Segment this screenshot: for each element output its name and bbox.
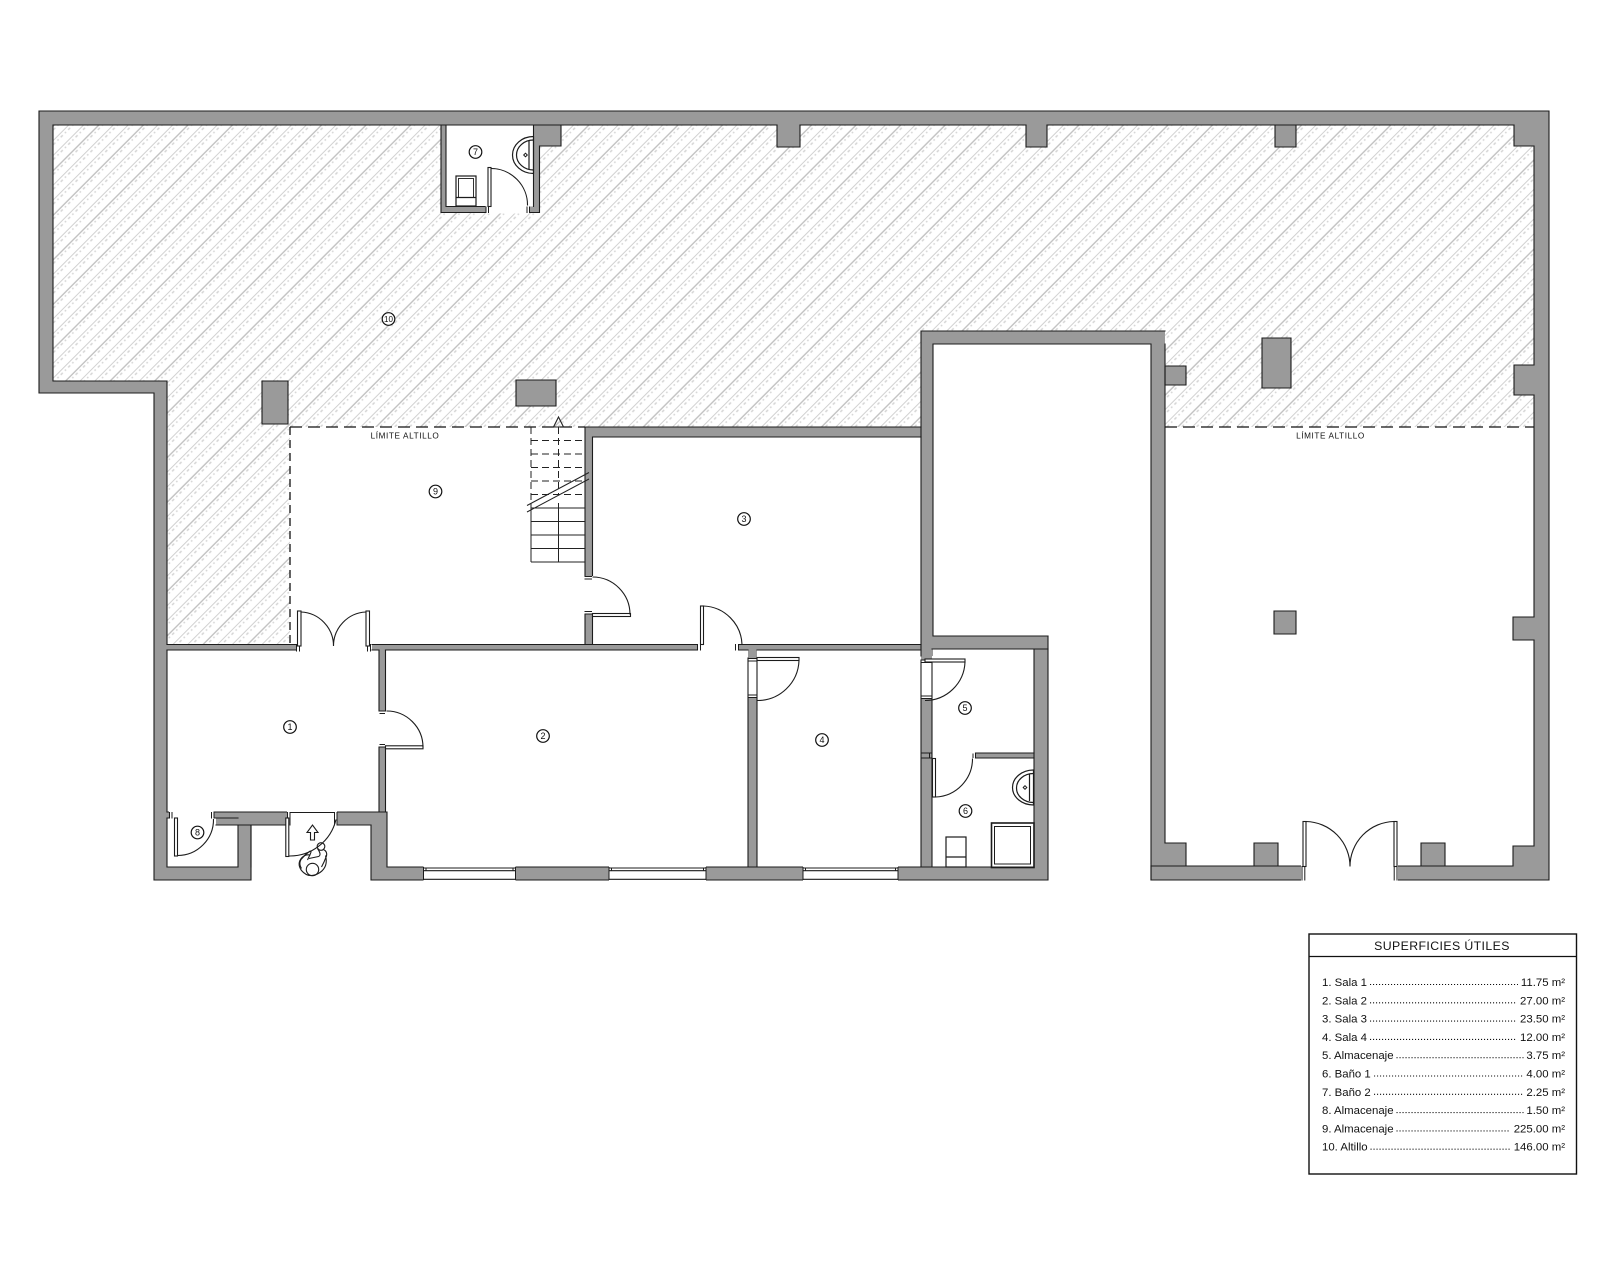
svg-text:7: 7: [473, 147, 478, 157]
svg-text:2.25 m²: 2.25 m²: [1526, 1087, 1565, 1099]
svg-text:225.00 m²: 225.00 m²: [1514, 1123, 1565, 1135]
svg-text:3.75 m²: 3.75 m²: [1526, 1050, 1565, 1062]
svg-text:11.75 m²: 11.75 m²: [1521, 977, 1565, 989]
svg-text:LÍMITE ALTILLO: LÍMITE ALTILLO: [371, 431, 440, 441]
svg-text:6. Baño 1: 6. Baño 1: [1322, 1069, 1371, 1081]
svg-text:SUPERFICIES ÚTILES: SUPERFICIES ÚTILES: [1374, 938, 1510, 953]
svg-text:10: 10: [384, 315, 393, 324]
svg-text:9: 9: [433, 487, 438, 497]
svg-text:3. Sala 3: 3. Sala 3: [1322, 1014, 1367, 1026]
svg-text:8: 8: [195, 828, 200, 838]
svg-text:7. Baño 2: 7. Baño 2: [1322, 1087, 1371, 1099]
svg-text:1: 1: [287, 722, 292, 732]
svg-text:27.00 m²: 27.00 m²: [1520, 995, 1565, 1007]
svg-text:5: 5: [962, 703, 967, 713]
svg-text:23.50 m²: 23.50 m²: [1520, 1014, 1565, 1026]
svg-text:6: 6: [963, 806, 968, 816]
svg-text:3: 3: [741, 514, 746, 524]
svg-text:4: 4: [819, 735, 824, 745]
svg-text:LÍMITE ALTILLO: LÍMITE ALTILLO: [1296, 431, 1365, 441]
svg-text:5. Almacenaje: 5. Almacenaje: [1322, 1050, 1394, 1062]
svg-text:1. Sala 1: 1. Sala 1: [1322, 977, 1367, 989]
svg-text:8. Almacenaje: 8. Almacenaje: [1322, 1105, 1394, 1117]
svg-text:10. Altillo: 10. Altillo: [1322, 1142, 1368, 1154]
svg-text:12.00 m²: 12.00 m²: [1520, 1032, 1565, 1044]
svg-text:2: 2: [540, 731, 545, 741]
svg-text:1.50 m²: 1.50 m²: [1526, 1105, 1565, 1117]
svg-text:4.00 m²: 4.00 m²: [1526, 1069, 1565, 1081]
svg-text:146.00 m²: 146.00 m²: [1514, 1142, 1565, 1154]
svg-text:4. Sala 4: 4. Sala 4: [1322, 1032, 1367, 1044]
svg-text:9. Almacenaje: 9. Almacenaje: [1322, 1123, 1394, 1135]
svg-text:2. Sala 2: 2. Sala 2: [1322, 995, 1367, 1007]
